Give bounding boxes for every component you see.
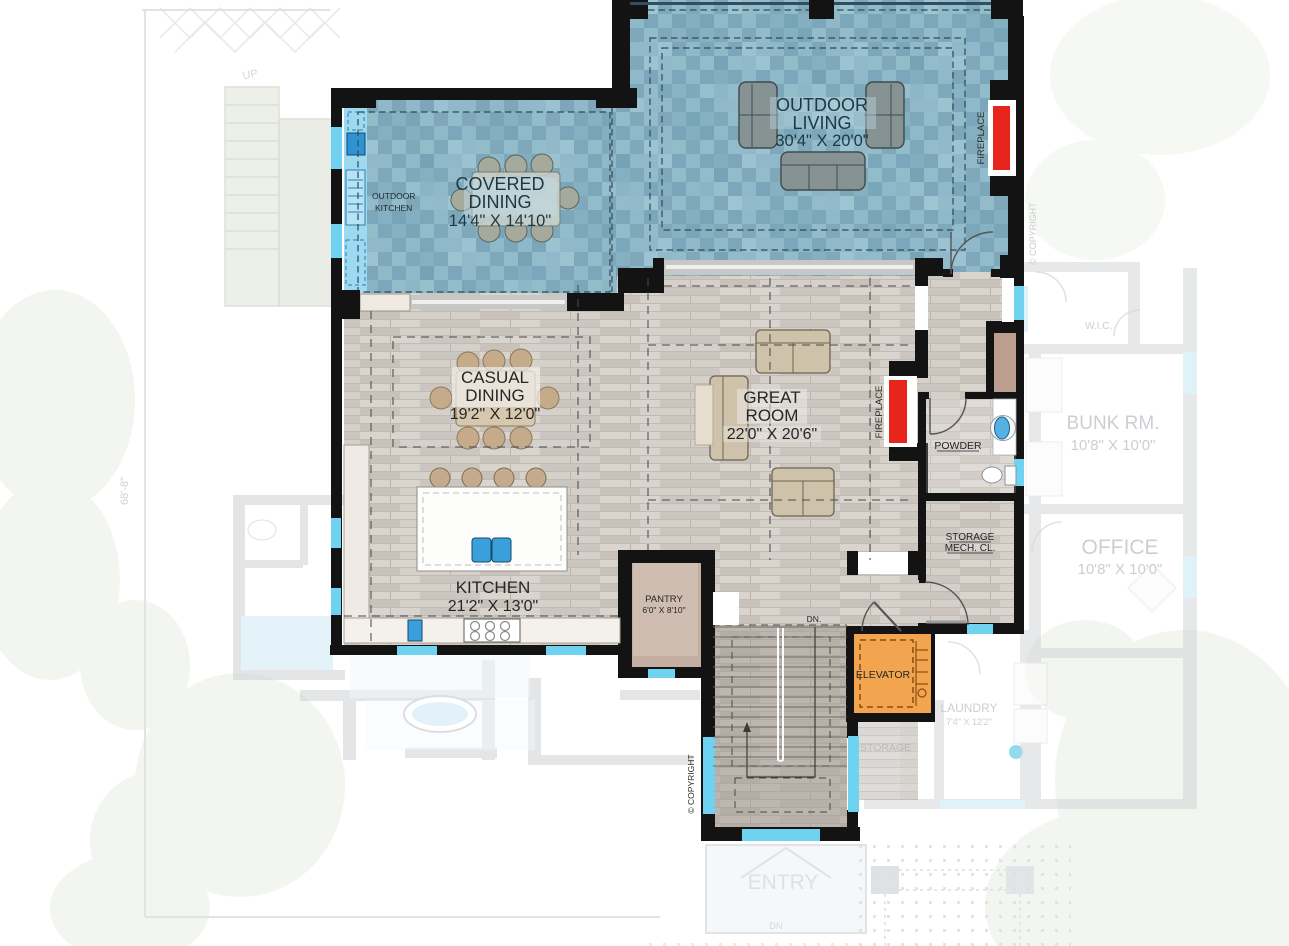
svg-text:© COPYRIGHT: © COPYRIGHT: [686, 754, 696, 813]
svg-text:LAUNDRY: LAUNDRY: [940, 701, 997, 715]
svg-text:FIREPLACE: FIREPLACE: [874, 386, 885, 439]
svg-text:CASUAL: CASUAL: [461, 368, 529, 387]
svg-text:LIVING: LIVING: [792, 113, 851, 133]
svg-text:7'4" X 12'2": 7'4" X 12'2": [946, 717, 992, 727]
svg-text:22'0" X 20'6": 22'0" X 20'6": [727, 426, 817, 443]
svg-text:KITCHEN: KITCHEN: [375, 203, 412, 213]
svg-text:BUNK RM.: BUNK RM.: [1067, 413, 1160, 434]
svg-text:OUTDOOR: OUTDOOR: [776, 95, 868, 115]
svg-text:FIREPLACE: FIREPLACE: [976, 112, 987, 165]
svg-text:STORAGE: STORAGE: [946, 532, 995, 543]
svg-text:30'4" X 20'0": 30'4" X 20'0": [775, 132, 868, 150]
svg-text:DN: DN: [770, 921, 783, 931]
svg-text:ENTRY: ENTRY: [748, 871, 819, 894]
svg-text:10'8" X 10'0": 10'8" X 10'0": [1071, 437, 1156, 454]
svg-text:PANTRY: PANTRY: [645, 594, 683, 605]
svg-text:ELEVATOR: ELEVATOR: [856, 669, 911, 681]
svg-text:68'-8": 68'-8": [119, 477, 131, 505]
svg-text:POWDER: POWDER: [934, 440, 982, 452]
svg-text:DINING: DINING: [469, 192, 532, 212]
svg-text:14'4" X 14'10": 14'4" X 14'10": [449, 212, 552, 230]
svg-text:10'8" X 10'0": 10'8" X 10'0": [1078, 561, 1163, 578]
svg-text:© COPYRIGHT: © COPYRIGHT: [1028, 202, 1038, 265]
svg-text:ROOM: ROOM: [746, 406, 799, 425]
svg-text:GREAT: GREAT: [743, 388, 800, 407]
svg-text:KITCHEN: KITCHEN: [456, 578, 531, 597]
svg-text:19'2" X 12'0": 19'2" X 12'0": [450, 406, 540, 423]
svg-text:21'2" X 13'0": 21'2" X 13'0": [448, 598, 538, 615]
svg-text:DN.: DN.: [807, 614, 822, 624]
svg-text:OUTDOOR: OUTDOOR: [372, 191, 415, 201]
svg-text:MECH. CL.: MECH. CL.: [945, 543, 996, 554]
svg-text:6'0" X 8'10": 6'0" X 8'10": [642, 605, 685, 615]
svg-text:W.I.C.: W.I.C.: [1085, 321, 1112, 332]
svg-text:COVERED: COVERED: [455, 174, 544, 194]
svg-text:DINING: DINING: [465, 386, 525, 405]
svg-text:OFFICE: OFFICE: [1082, 536, 1159, 559]
